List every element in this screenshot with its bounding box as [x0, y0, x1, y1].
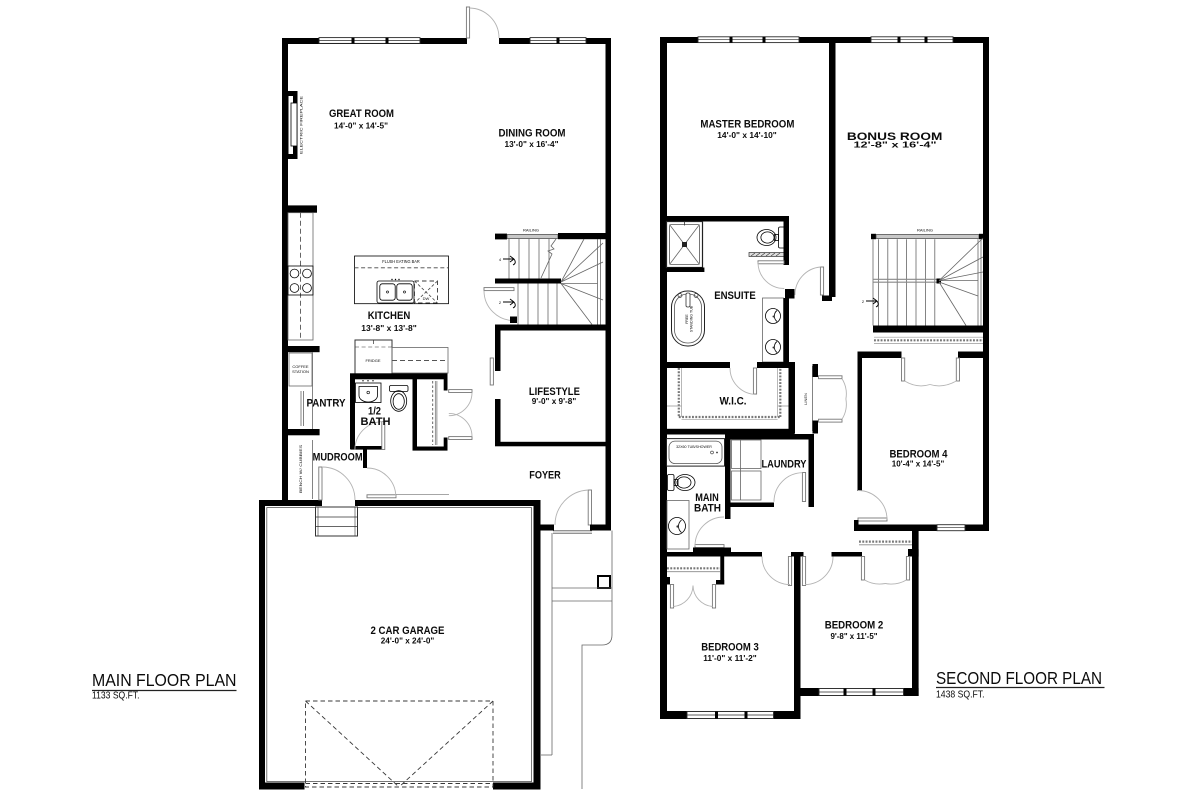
svg-text:1133 SQ.FT.: 1133 SQ.FT.: [92, 691, 140, 702]
svg-text:KITCHEN: KITCHEN: [368, 310, 411, 322]
svg-text:FOYER: FOYER: [529, 470, 561, 482]
svg-text:24'-0" x 24'-0": 24'-0" x 24'-0": [381, 637, 435, 646]
svg-text:ELECTRIC FIREPLACE: ELECTRIC FIREPLACE: [299, 96, 304, 154]
svg-text:STATION: STATION: [292, 369, 309, 374]
svg-text:13'-0" x 16'-4": 13'-0" x 16'-4": [505, 140, 559, 149]
svg-text:FRIDGE: FRIDGE: [365, 358, 380, 363]
svg-text:BATH: BATH: [361, 416, 391, 428]
svg-text:GREAT ROOM: GREAT ROOM: [329, 108, 394, 120]
svg-text:10'-4" x 14'-5": 10'-4" x 14'-5": [892, 460, 945, 469]
svg-text:PANTRY: PANTRY: [307, 398, 346, 410]
svg-text:9'-8" x 11'-5": 9'-8" x 11'-5": [831, 632, 878, 641]
svg-text:BEDROOM 3: BEDROOM 3: [701, 642, 759, 654]
svg-text:STANDING TUB: STANDING TUB: [690, 305, 694, 332]
svg-text:2 CAR GARAGE: 2 CAR GARAGE: [371, 625, 445, 637]
svg-text:SECOND FLOOR PLAN: SECOND FLOOR PLAN: [936, 668, 1102, 688]
svg-text:4: 4: [499, 257, 502, 262]
svg-text:FLUSH EATING BAR: FLUSH EATING BAR: [382, 259, 420, 265]
svg-text:DW: DW: [423, 296, 430, 301]
svg-text:12'-8" x 16'-4": 12'-8" x 16'-4": [854, 141, 937, 150]
svg-text:MASTER BEDROOM: MASTER BEDROOM: [700, 119, 794, 131]
svg-text:LAUNDRY: LAUNDRY: [762, 459, 807, 471]
svg-text:BENCH W/ CUBBIES: BENCH W/ CUBBIES: [298, 445, 303, 493]
svg-text:BATH: BATH: [694, 503, 721, 515]
svg-text:MAIN FLOOR PLAN: MAIN FLOOR PLAN: [92, 670, 237, 690]
svg-text:14'-0" x 14'-10": 14'-0" x 14'-10": [717, 131, 777, 140]
svg-text:13'-8" x 13'-8": 13'-8" x 13'-8": [361, 324, 417, 333]
svg-text:BEDROOM 2: BEDROOM 2: [825, 620, 884, 632]
svg-text:11'-0" x 11'-2": 11'-0" x 11'-2": [703, 654, 757, 663]
svg-text:RAILING: RAILING: [917, 228, 933, 233]
svg-text:FREE: FREE: [685, 314, 689, 324]
svg-text:RAILING: RAILING: [523, 228, 539, 233]
svg-text:DINING ROOM: DINING ROOM: [499, 128, 566, 140]
svg-text:9'-0" x 9'-8": 9'-0" x 9'-8": [532, 397, 577, 406]
svg-text:14'-0" x 14'-5": 14'-0" x 14'-5": [334, 122, 388, 131]
svg-text:1438 SQ.FT.: 1438 SQ.FT.: [936, 690, 985, 701]
svg-text:W.I.C.: W.I.C.: [720, 396, 747, 408]
svg-text:MUDROOM: MUDROOM: [313, 452, 363, 464]
svg-text:ENSUITE: ENSUITE: [714, 290, 756, 302]
svg-text:2: 2: [499, 300, 502, 305]
svg-text:2: 2: [862, 299, 865, 304]
svg-text:LINEN: LINEN: [803, 393, 808, 405]
svg-text:32X60 TUB/SHOWER: 32X60 TUB/SHOWER: [676, 445, 712, 449]
